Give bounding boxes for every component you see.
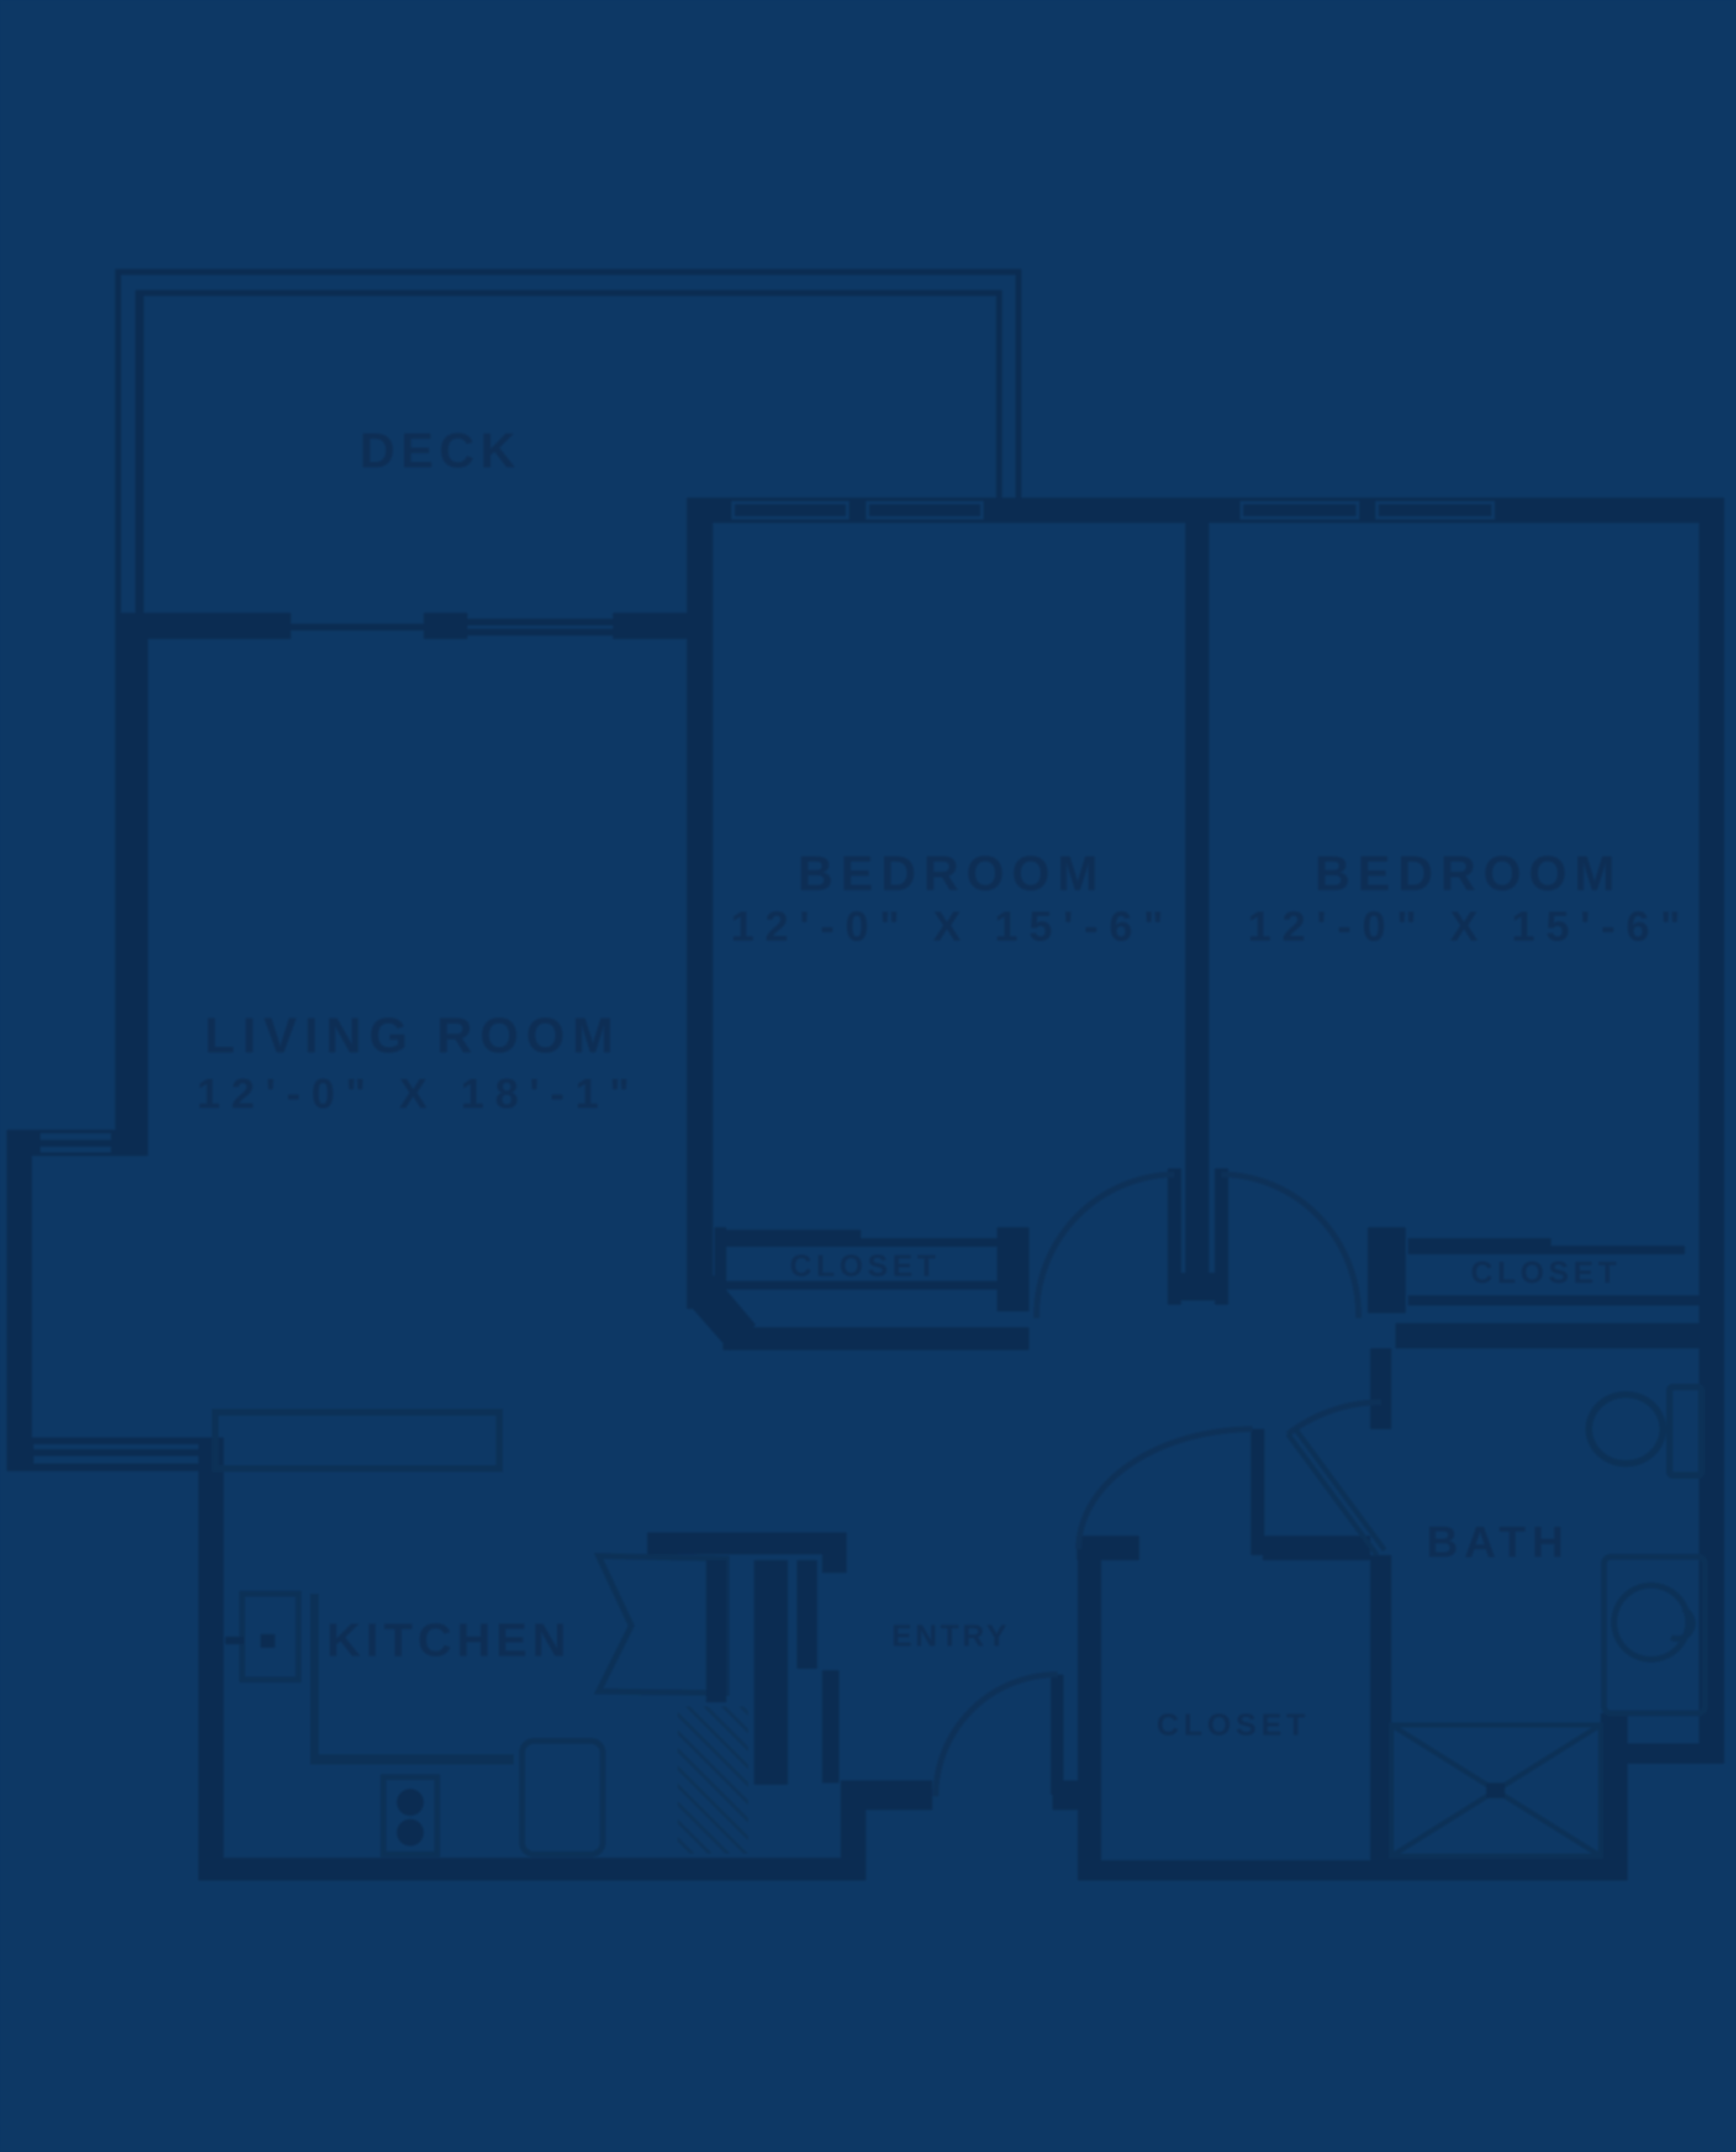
svg-text:DECK: DECK: [360, 424, 521, 478]
svg-text:KITCHEN: KITCHEN: [327, 1613, 572, 1666]
svg-text:12'-0" X 18'-1": 12'-0" X 18'-1": [197, 1070, 640, 1117]
svg-text:BATH: BATH: [1427, 1518, 1570, 1567]
svg-text:CLOSET: CLOSET: [1470, 1255, 1621, 1290]
svg-text:LIVING ROOM: LIVING ROOM: [204, 1008, 621, 1063]
svg-text:12'-0" X 15'-6": 12'-0" X 15'-6": [731, 903, 1174, 950]
svg-text:BEDROOM: BEDROOM: [1315, 847, 1623, 901]
svg-text:CLOSET: CLOSET: [789, 1248, 940, 1283]
svg-text:ENTRY: ENTRY: [892, 1618, 1010, 1653]
svg-text:BEDROOM: BEDROOM: [798, 847, 1105, 901]
svg-text:12'-0" X 15'-6": 12'-0" X 15'-6": [1248, 903, 1691, 950]
svg-text:CLOSET: CLOSET: [1157, 1707, 1310, 1742]
